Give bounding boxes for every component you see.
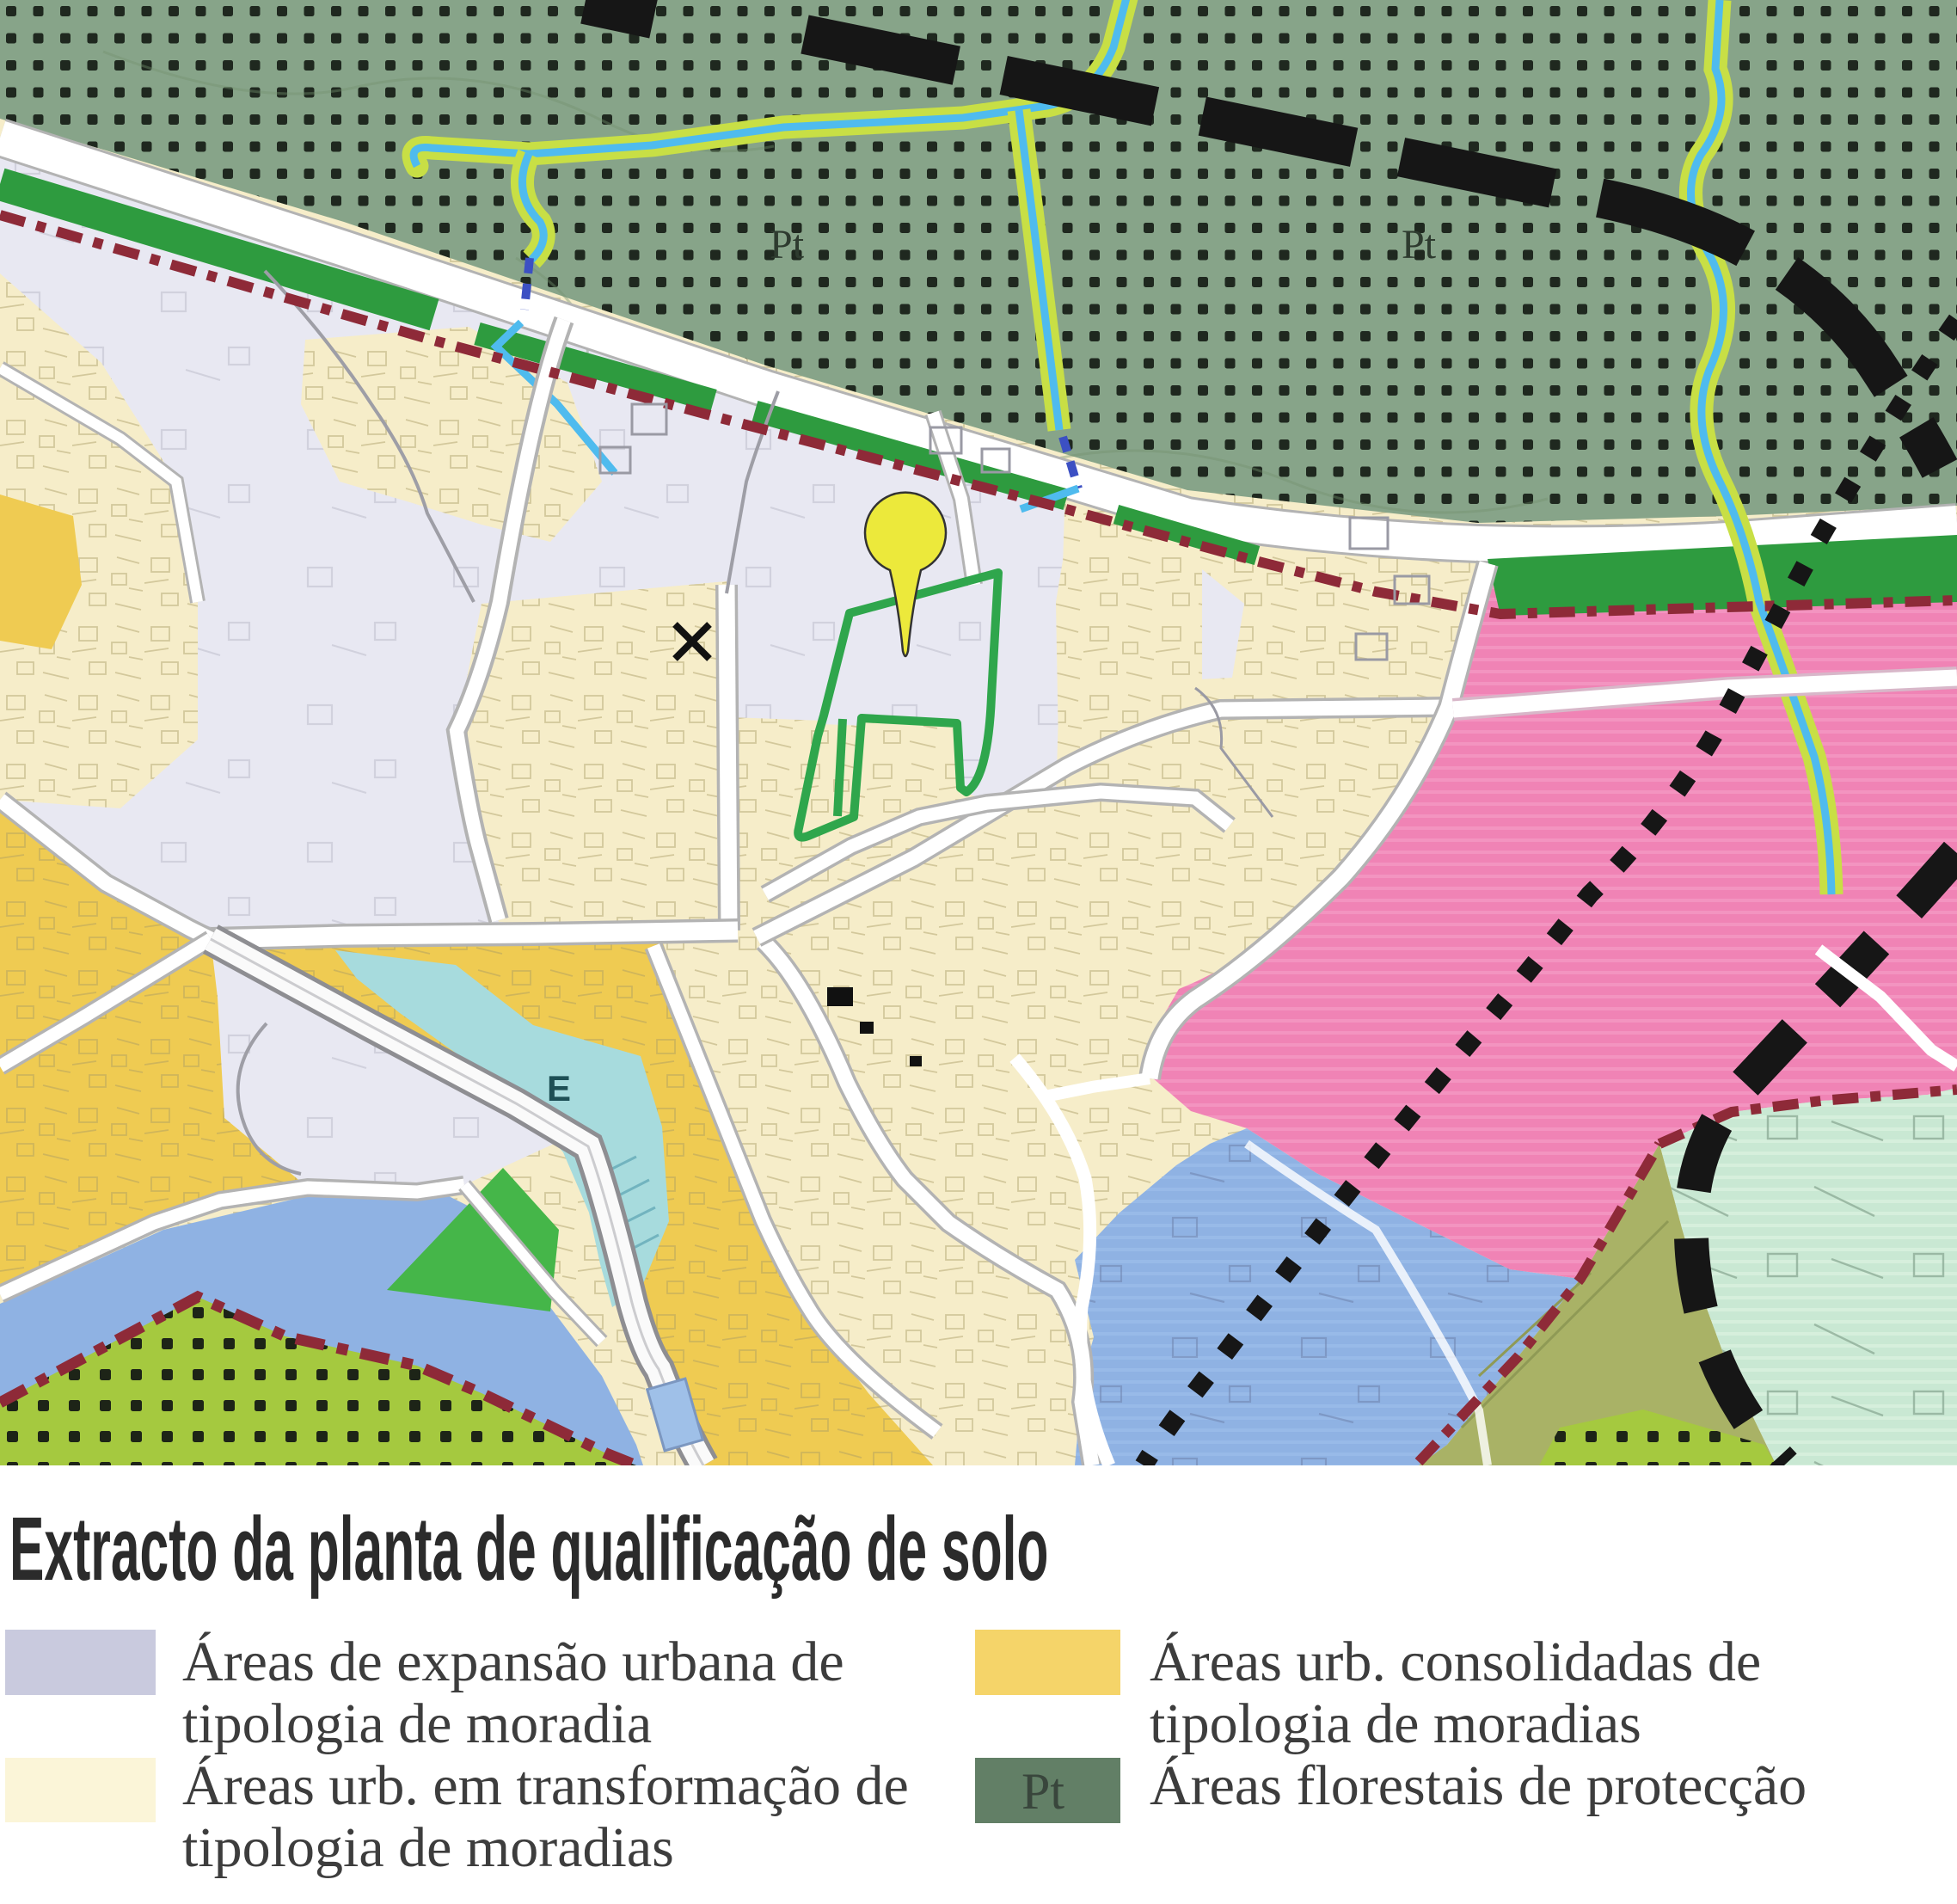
svg-text:Pt: Pt <box>770 222 805 267</box>
svg-text:E: E <box>547 1068 571 1109</box>
svg-text:Áreas urb. em transformação de: Áreas urb. em transformação de <box>182 1754 909 1817</box>
svg-text:tipologia de moradias: tipologia de moradias <box>182 1816 674 1879</box>
svg-text:Áreas de expansão urbana de: Áreas de expansão urbana de <box>182 1631 844 1693</box>
svg-text:Extracto da planta de qualific: Extracto da planta de qualificação de so… <box>9 1499 1048 1600</box>
svg-text:Áreas florestais de protecção: Áreas florestais de protecção <box>1150 1754 1807 1817</box>
svg-text:Pt: Pt <box>1402 222 1437 267</box>
svg-text:Áreas urb. consolidadas de: Áreas urb. consolidadas de <box>1150 1631 1761 1693</box>
svg-text:tipologia de moradia: tipologia de moradia <box>182 1692 652 1755</box>
svg-text:tipologia de moradias: tipologia de moradias <box>1150 1692 1641 1755</box>
svg-text:Pt: Pt <box>1021 1763 1064 1820</box>
